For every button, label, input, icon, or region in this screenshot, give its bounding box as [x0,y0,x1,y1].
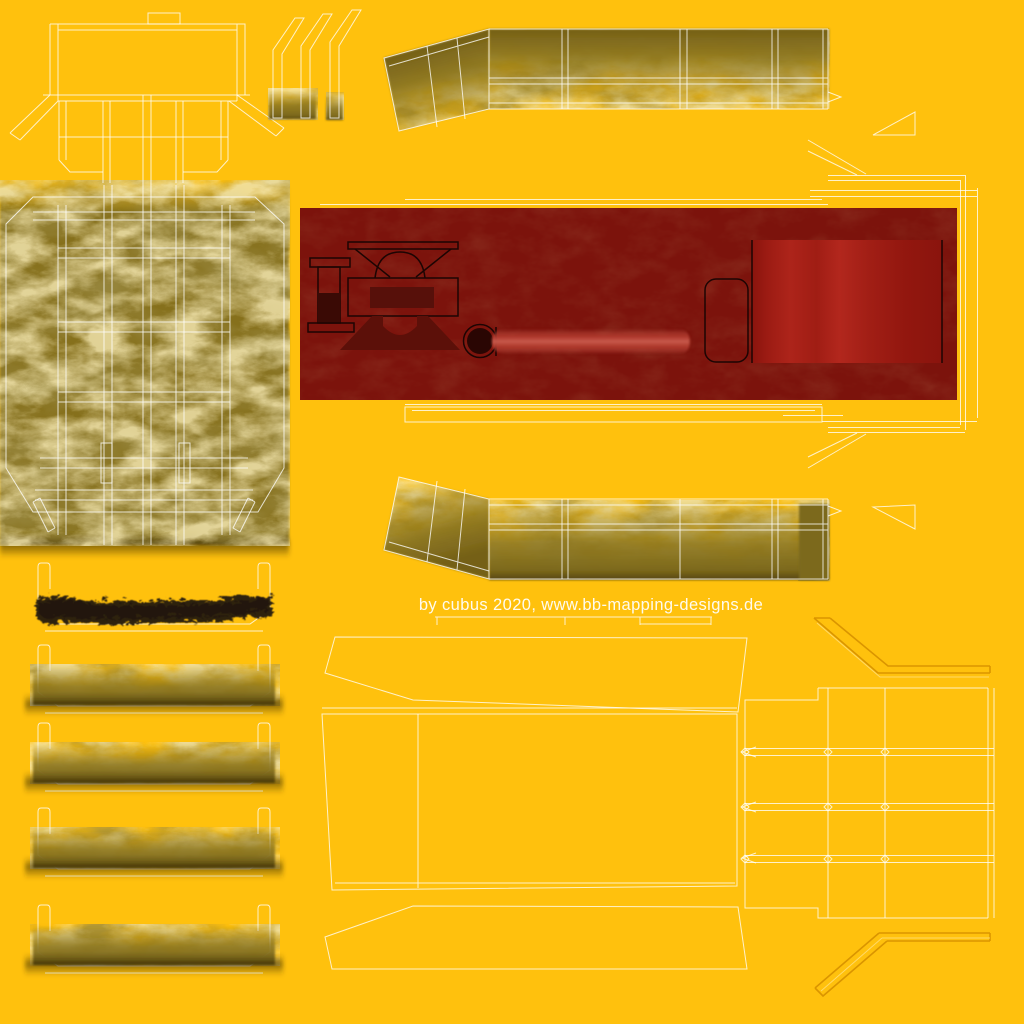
brake-pipe [492,329,690,354]
credit-text: by cubus 2020, www.bb-mapping-designs.de [419,596,763,614]
texture-canvas: by cubus 2020, www.bb-mapping-designs.de [0,0,1024,1024]
red-chassis-band [300,200,957,423]
wheel-hub [464,325,497,358]
uv-texture-sheet: by cubus 2020, www.bb-mapping-designs.de [0,0,1024,1024]
air-tank-cylinder [752,240,942,363]
